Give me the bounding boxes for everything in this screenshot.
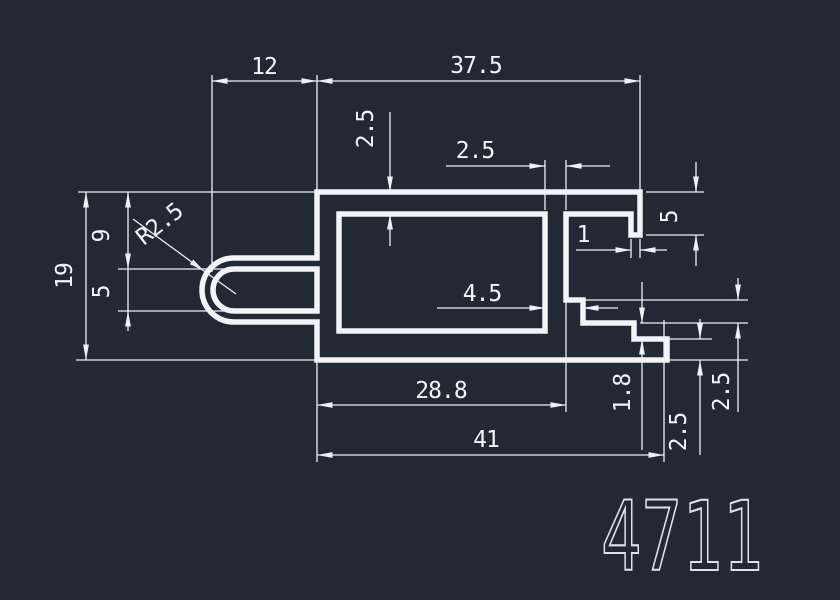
- dim-label-wall-right-upper: 2.5: [456, 138, 495, 164]
- dim-label-width-overall: 41: [473, 427, 499, 453]
- dim-label-flange-thickness: 2.5: [666, 413, 692, 452]
- dim-label-wall-right-lower: 4.5: [463, 281, 502, 307]
- dim-label-height-overall: 19: [52, 263, 78, 289]
- dim-label-width-left-arm: 12: [251, 54, 277, 80]
- dim-label-step-drop: 2.5: [709, 373, 735, 412]
- dim-label-slot-height: 5: [89, 286, 115, 299]
- dim-label-width-body: 28.8: [415, 378, 467, 404]
- dim-label-wall-top: 2.5: [353, 110, 379, 149]
- dim-label-hook-depth: 5: [657, 211, 683, 224]
- dim-label-arm-offset: 9: [89, 229, 115, 242]
- dim-label-width-top: 37.5: [450, 53, 501, 79]
- cad-canvas: 12 37.5 2.5 2.5 5 1 9 5 19 R2.5 4.5 28.8…: [0, 0, 840, 600]
- dim-label-hook-lip: 1: [577, 222, 590, 248]
- dim-label-flange-step: 1.8: [610, 374, 636, 413]
- part-number: 4711: [601, 481, 763, 593]
